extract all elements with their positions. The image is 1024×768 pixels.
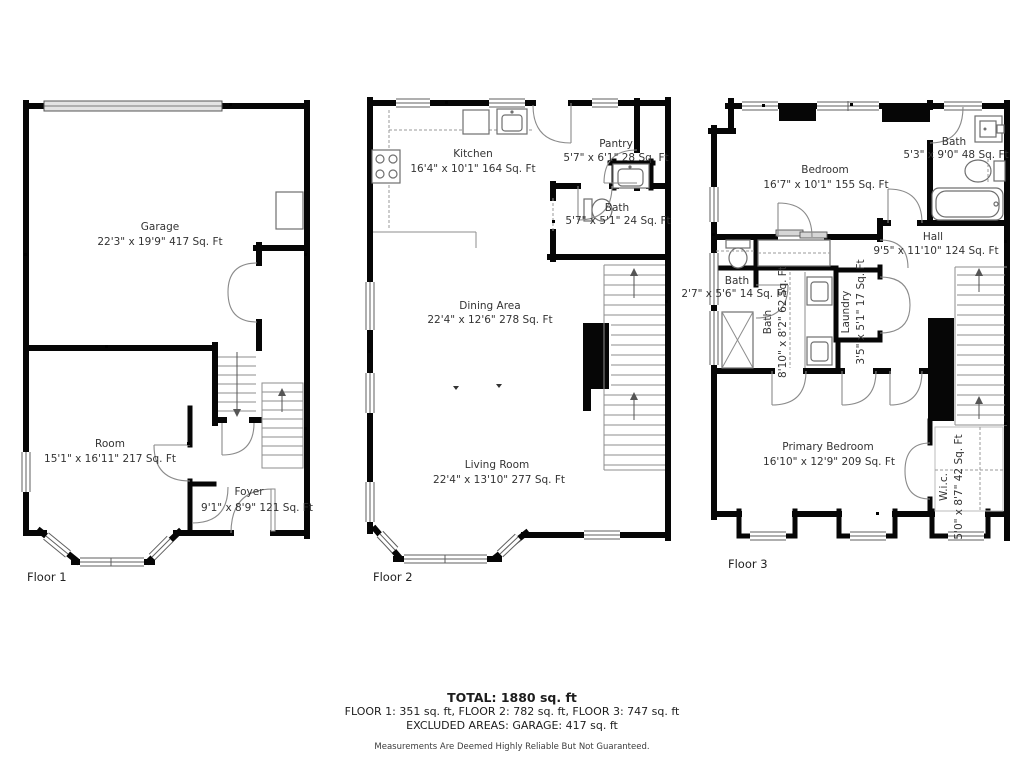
stair-core-stub (583, 388, 591, 411)
floor-3-title: Floor 3 (728, 557, 768, 571)
ceiling-marks (453, 384, 502, 390)
garage-label: Garage (141, 221, 179, 233)
floor-areas: FLOOR 1: 351 sq. ft, FLOOR 2: 782 sq. ft… (0, 705, 1024, 719)
foyer-label: Foyer (234, 486, 264, 498)
dining-dims: 22'4" x 12'6" 278 Sq. Ft (427, 314, 552, 326)
foyer-walls (190, 408, 214, 533)
toilet (965, 160, 991, 182)
pantry-dims: 5'7" x 6'1" 28 Sq. Ft (563, 152, 668, 164)
garage-door (44, 101, 222, 111)
kitchen-dims: 16'4" x 10'1" 164 Sq. Ft (410, 163, 535, 175)
toilet-room-fixtures (716, 240, 754, 268)
toilet-tank (994, 161, 1005, 181)
sliding-door (776, 230, 803, 236)
top-wall-bump-2 (882, 106, 930, 122)
disclaimer: Measurements Are Deemed Highly Reliable … (0, 742, 1024, 752)
floor-1-outer-walls (26, 103, 307, 562)
kitchen-label: Kitchen (453, 148, 492, 160)
kitchen-boundary (373, 232, 476, 248)
floor-2-title: Floor 2 (373, 570, 413, 584)
area-summary: TOTAL: 1880 sq. ft FLOOR 1: 351 sq. ft, … (0, 690, 1024, 752)
laundry-dims: 3'5" x 5'1" 17 Sq. Ft (855, 259, 867, 364)
floor-1-title: Floor 1 (27, 570, 67, 584)
stair-core-wall (583, 323, 609, 389)
big-bath-dims: 8'10" x 8'2" 62 Sq. Ft (777, 266, 789, 378)
wic-dims: 5'0" x 8'7" 42 Sq. Ft (953, 434, 965, 539)
floor-1-windows (26, 452, 170, 566)
floor-1-stairs (218, 352, 303, 468)
room-dims: 15'1" x 16'11" 217 Sq. Ft (44, 453, 176, 465)
primary-bedroom-dims: 16'10" x 12'9" 209 Sq. Ft (763, 456, 895, 468)
toilet-tank (726, 240, 750, 248)
hall-label: Hall (923, 231, 943, 243)
living-dims: 22'4" x 13'10" 277 Sq. Ft (433, 474, 565, 486)
room-label: Room (95, 438, 125, 450)
excluded-areas: EXCLUDED AREAS: GARAGE: 417 sq. ft (0, 719, 1024, 733)
living-label: Living Room (465, 459, 529, 471)
top-bath-fixtures (932, 116, 1005, 220)
bath-label: Bath (605, 202, 629, 214)
hall-dims: 9'5" x 11'10" 124 Sq. Ft (873, 245, 998, 257)
garage-dims: 22'3" x 19'9" 417 Sq. Ft (97, 236, 222, 248)
floor-2-plan: Kitchen 16'4" x 10'1" 164 Sq. Ft Pantry … (368, 100, 671, 584)
stair-core-wall (928, 318, 954, 421)
floor-2-stairs (604, 265, 665, 470)
pantry-label: Pantry (599, 138, 633, 150)
primary-bedroom-label: Primary Bedroom (782, 441, 873, 453)
total-area: TOTAL: 1880 sq. ft (0, 690, 1024, 705)
bath-top-label: Bath (942, 136, 966, 148)
small-bath-dims: 2'7" x 5'6" 14 Sq. Ft (681, 288, 786, 300)
small-bath-label: Bath (725, 275, 749, 287)
garage-shelf (276, 192, 303, 229)
wic-label: W.i.c. (938, 473, 950, 501)
wall-ticks (24, 103, 307, 445)
big-bath-label: Bath (762, 310, 774, 334)
floor-1-interior-walls (26, 245, 307, 423)
floor-1-plan: Garage 22'3" x 19'9" 417 Sq. Ft Room 15'… (24, 101, 313, 584)
floorplan-drawing: Garage 22'3" x 19'9" 417 Sq. Ft Room 15'… (0, 0, 1024, 645)
laundry-label: Laundry (840, 291, 852, 334)
floor-3-stairs (955, 267, 1007, 425)
foyer-dims: 9'1" x 8'9" 121 Sq. Ft (201, 502, 313, 514)
floorplan-page: Garage 22'3" x 19'9" 417 Sq. Ft Room 15'… (0, 0, 1024, 768)
sliding-door (800, 232, 827, 238)
top-wall-bump (779, 106, 816, 121)
dining-label: Dining Area (459, 300, 520, 312)
bath-top-dims: 5'3" x 9'0" 48 Sq. Ft (903, 149, 1008, 161)
stove (372, 150, 400, 183)
bath-dims: 5'7" x 5'1" 24 Sq. Ft (565, 215, 670, 227)
bedroom-dims: 16'7" x 10'1" 155 Sq. Ft (763, 179, 888, 191)
floor-3-plan: Bedroom 16'7" x 10'1" 155 Sq. Ft Bath 5'… (681, 101, 1008, 571)
cabinet (463, 110, 489, 134)
bedroom-label: Bedroom (801, 164, 849, 176)
